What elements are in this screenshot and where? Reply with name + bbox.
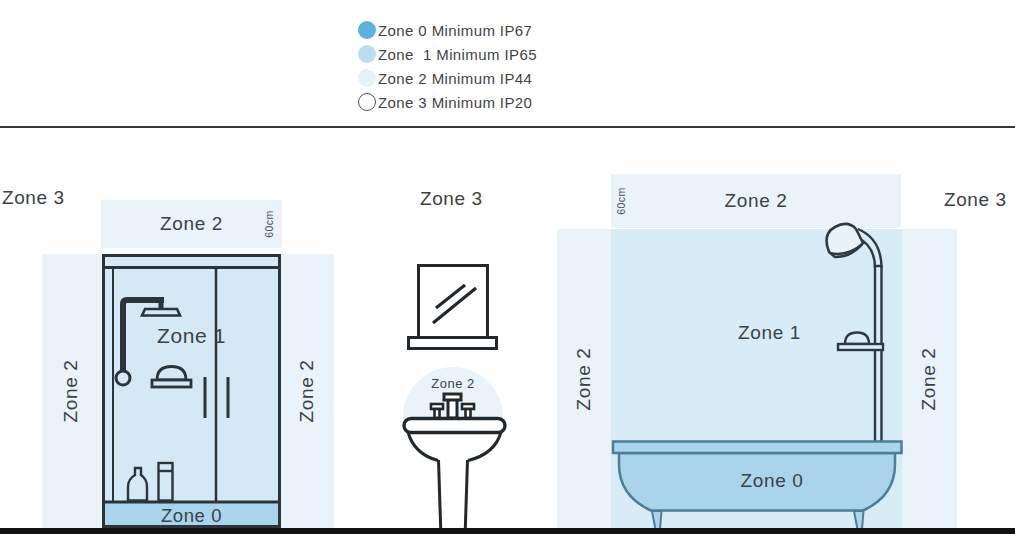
- shower-top-zone2-band: Zone 2: [101, 200, 282, 248]
- bath-zone3-label: Zone 3: [944, 189, 1007, 211]
- header-separator: [0, 126, 1015, 128]
- bathroom-zones-diagram: Zone 0 Minimum IP67 Zone 1 Minimum IP65 …: [0, 0, 1015, 535]
- zone1-swatch-icon: [358, 45, 376, 63]
- bath-right-zone2-label: Zone 2: [919, 347, 941, 410]
- zone0-swatch-icon: [358, 21, 376, 39]
- legend-label-zone1: Zone 1 Minimum IP65: [378, 46, 537, 63]
- floor-line: [0, 528, 1015, 534]
- legend-item-zone0: Zone 0 Minimum IP67: [358, 21, 532, 39]
- zone2-swatch-icon: [358, 69, 376, 87]
- shower-left-zone2-label: Zone 2: [61, 360, 83, 423]
- legend-label-zone3: Zone 3 Minimum IP20: [378, 94, 532, 111]
- legend-item-zone3: Zone 3 Minimum IP20: [358, 93, 532, 111]
- shower-band-60cm-label: 60cm: [258, 200, 280, 248]
- basin-zone3-label: Zone 3: [420, 188, 483, 210]
- shower-enclosure-icon: [102, 254, 281, 528]
- legend-label-zone2: Zone 2 Minimum IP44: [378, 70, 532, 87]
- bath-top-zone2-label: Zone 2: [725, 190, 788, 212]
- bath-left-zone2-band: Zone 2: [557, 229, 611, 528]
- shower-right-zone2-label: Zone 2: [297, 360, 319, 423]
- basin-icon: [395, 385, 515, 533]
- legend-item-zone2: Zone 2 Minimum IP44: [358, 69, 532, 87]
- shower-right-zone2-band: Zone 2: [281, 254, 334, 528]
- shower-top-zone2-label: Zone 2: [160, 213, 223, 235]
- shower-zone1-label: Zone 1: [102, 324, 281, 348]
- legend-item-zone1: Zone 1 Minimum IP65: [358, 45, 537, 63]
- legend-label-zone0: Zone 0 Minimum IP67: [378, 22, 532, 39]
- shower-zone3-label: Zone 3: [2, 187, 65, 209]
- shower-zone0-label: Zone 0: [102, 505, 281, 527]
- mirror-icon: [405, 262, 500, 352]
- bath-left-zone2-label: Zone 2: [573, 347, 595, 410]
- shower-left-zone2-band: Zone 2: [42, 254, 101, 528]
- bath-zone0-label: Zone 0: [627, 470, 917, 492]
- zone3-swatch-icon: [358, 93, 376, 111]
